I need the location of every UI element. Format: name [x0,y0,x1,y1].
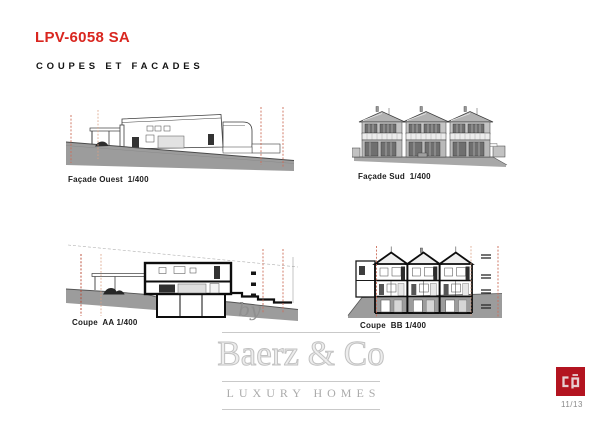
coupe-bb-label: Coupe BB 1/400 [360,321,426,330]
watermark-divider-bottom [222,409,380,410]
document-page: LPV-6058 SA COUPES ET FACADES [0,0,600,425]
coupe-aa-label: Coupe AA 1/400 [72,318,138,327]
car-silhouette [95,142,109,147]
page-title: LPV-6058 SA [35,29,130,46]
watermark-by: by [238,299,261,321]
page-number: 11/13 [561,400,583,409]
cp-logo-icon [556,367,585,396]
page-subtitle: COUPES ET FACADES [36,61,204,72]
facade-sud-label: Façade Sud 1/400 [358,172,431,181]
watermark-tagline: LUXURY HOMES [222,385,385,402]
right-garage [493,146,505,157]
building-west-elevation [120,115,280,154]
facade-ouest-drawing [62,101,302,175]
facade-ouest-label: Façade Ouest 1/400 [68,175,149,184]
ground [352,157,507,167]
left-wing [356,261,375,297]
carport [90,128,124,146]
coupe-aa-drawing [62,241,304,325]
house-units [359,107,493,158]
coupe-bb-drawing [346,240,516,324]
watermark-brand: Baerz & Co [214,336,388,371]
facade-sud-drawing [352,103,510,169]
watermark-divider-middle [222,381,380,382]
left-wall [352,148,360,157]
watermark-divider-top [222,332,380,333]
